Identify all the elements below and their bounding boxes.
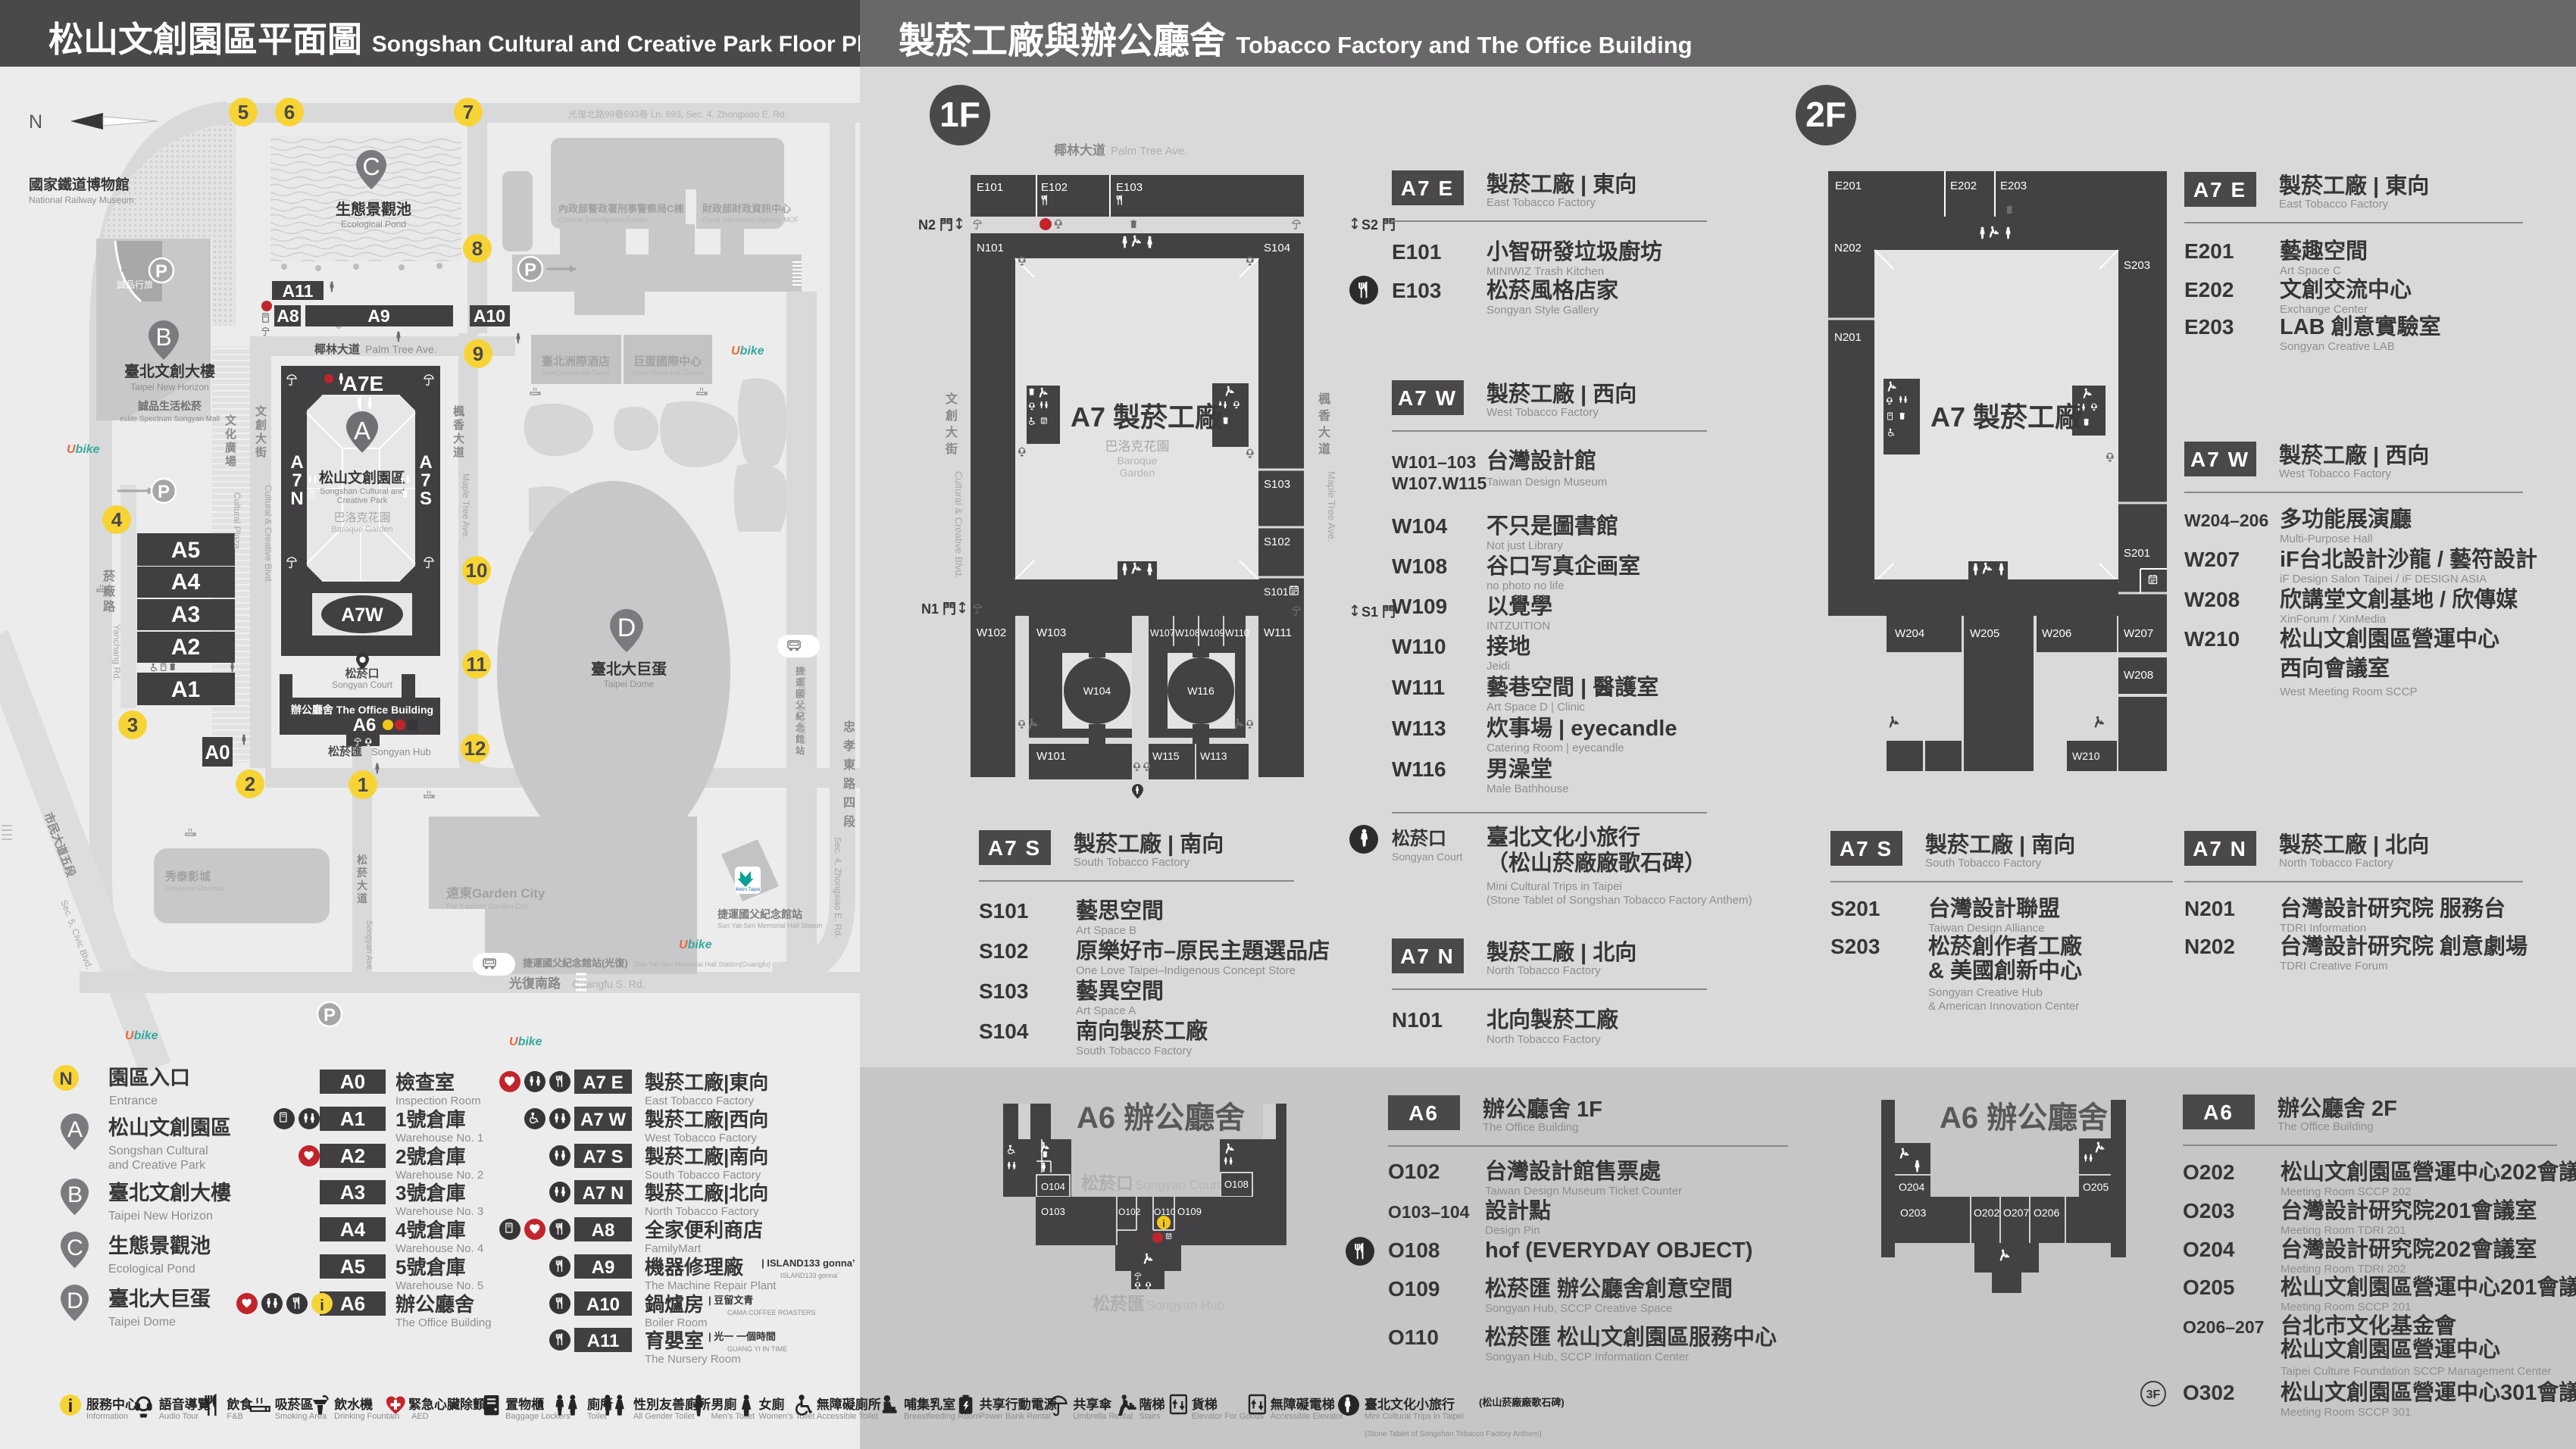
svg-text:Taiwan Design Museum: Taiwan Design Museum xyxy=(1487,476,1607,489)
svg-text:O203: O203 xyxy=(1900,1207,1926,1219)
svg-text:Songyan Hub, SCCP Information: Songyan Hub, SCCP Information Center xyxy=(1485,1351,1689,1363)
svg-text:男澡堂: 男澡堂 xyxy=(1487,757,1552,782)
svg-text:Design Pin: Design Pin xyxy=(1485,1224,1540,1237)
svg-text:W107.W115: W107.W115 xyxy=(1392,473,1487,493)
svg-text:道: 道 xyxy=(453,445,464,459)
svg-text:台灣設計研究院 服務台: 台灣設計研究院 服務台 xyxy=(2280,895,2506,921)
svg-text:辦公廳舍 2F: 辦公廳舍 2F xyxy=(2277,1095,2397,1121)
svg-text:運: 運 xyxy=(798,676,806,686)
svg-text:大: 大 xyxy=(255,432,267,445)
svg-text:West Tobacco Factory: West Tobacco Factory xyxy=(645,1132,757,1145)
svg-text:3: 3 xyxy=(127,714,138,736)
svg-text:Meeting Room SCCP 301: Meeting Room SCCP 301 xyxy=(2281,1406,2411,1419)
svg-text:吸菸區: 吸菸區 xyxy=(275,1397,314,1412)
svg-text:A7 E: A7 E xyxy=(1401,176,1454,200)
svg-text:E203: E203 xyxy=(2000,180,2027,192)
svg-text:2號倉庫: 2號倉庫 xyxy=(395,1145,465,1168)
svg-text:East Tobacco Factory: East Tobacco Factory xyxy=(2279,198,2388,211)
svg-text:South Tobacco Factory: South Tobacco Factory xyxy=(1074,856,1190,869)
svg-text:W204–206: W204–206 xyxy=(2184,511,2268,530)
svg-text:Ubike: Ubike xyxy=(679,938,712,951)
svg-text:| ISLAND133 gonnaʼ: | ISLAND133 gonnaʼ xyxy=(761,1257,855,1269)
svg-text:12: 12 xyxy=(464,737,486,760)
svg-text:Far Eastern Garden City: Far Eastern Garden City xyxy=(446,903,528,911)
svg-text:A6: A6 xyxy=(1408,1101,1439,1125)
svg-text:MINIWIZ Trash Kitchen: MINIWIZ Trash Kitchen xyxy=(1487,265,1604,278)
svg-text:S102: S102 xyxy=(979,939,1028,963)
svg-text:製菸工廠|南向: 製菸工廠|南向 xyxy=(645,1145,768,1168)
svg-text:A1: A1 xyxy=(340,1107,365,1130)
svg-text:The Office Building: The Office Building xyxy=(2277,1120,2373,1133)
svg-text:W210: W210 xyxy=(2072,750,2100,762)
svg-text:InterContinental Taipei: InterContinental Taipei xyxy=(542,369,609,376)
svg-text:臺北文化小旅行: 臺北文化小旅行 xyxy=(1487,824,1640,850)
svg-text:文: 文 xyxy=(255,404,267,418)
svg-text:Information: Information xyxy=(86,1412,128,1421)
svg-text:East Tobacco Factory: East Tobacco Factory xyxy=(645,1095,754,1107)
svg-text:Yanchang Rd.: Yanchang Rd. xyxy=(111,624,122,681)
svg-text:藝趣空間: 藝趣空間 xyxy=(2280,238,2368,264)
svg-text:辦公廳舍: 辦公廳舍 xyxy=(395,1293,474,1316)
svg-text:機器修理廠: 機器修理廠 xyxy=(645,1256,744,1279)
svg-text:W104: W104 xyxy=(1392,514,1448,538)
svg-text:製菸工廠 | 北向: 製菸工廠 | 北向 xyxy=(1487,939,1637,965)
svg-text:W204: W204 xyxy=(1895,627,1924,640)
svg-text:O108: O108 xyxy=(1388,1238,1440,1262)
svg-text:Exchange Center: Exchange Center xyxy=(2280,303,2368,316)
svg-text:父: 父 xyxy=(798,696,806,706)
svg-text:O103–104: O103–104 xyxy=(1388,1202,1470,1222)
svg-text:W206: W206 xyxy=(2042,627,2071,640)
svg-text:Audio Tour: Audio Tour xyxy=(159,1412,199,1421)
svg-text:孝: 孝 xyxy=(843,739,855,753)
svg-text:站: 站 xyxy=(798,735,806,745)
svg-text:紀: 紀 xyxy=(798,706,806,716)
svg-text:S203: S203 xyxy=(1830,935,1880,958)
svg-text:W205: W205 xyxy=(1970,627,1999,640)
svg-text:A6 辦公廳舍: A6 辦公廳舍 xyxy=(1077,1101,1245,1135)
svg-text:The Office Building: The Office Building xyxy=(1483,1121,1578,1134)
svg-text:i: i xyxy=(1162,1218,1165,1229)
svg-text:The Nursery Room: The Nursery Room xyxy=(645,1353,741,1366)
svg-text:E203: E203 xyxy=(2184,315,2234,339)
svg-text:LAB 創意實驗室: LAB 創意實驗室 xyxy=(2280,314,2441,339)
svg-text:Art Space D | Clinic: Art Space D | Clinic xyxy=(1487,701,1585,714)
svg-text:製菸工廠 | 西向: 製菸工廠 | 西向 xyxy=(1487,381,1637,407)
svg-text:台灣設計館售票處: 台灣設計館售票處 xyxy=(1485,1158,1661,1184)
svg-text:A4: A4 xyxy=(340,1218,366,1241)
svg-text:Art Space C: Art Space C xyxy=(2280,264,2341,277)
svg-text:製菸工廠 | 東向: 製菸工廠 | 東向 xyxy=(1487,171,1637,197)
svg-text:臺北洲際酒店: 臺北洲際酒店 xyxy=(542,354,610,368)
svg-text:遠東Garden City: 遠東Garden City xyxy=(446,885,546,901)
svg-text:松菸匯 松山文創園區服務中心: 松菸匯 松山文創園區服務中心 xyxy=(1485,1324,1777,1350)
svg-text:XinForum / XinMedia: XinForum / XinMedia xyxy=(2280,613,2387,626)
svg-text:創: 創 xyxy=(255,418,267,432)
svg-text:Male Bathhouse: Male Bathhouse xyxy=(1487,782,1568,795)
svg-text:A8: A8 xyxy=(592,1220,615,1241)
svg-text:製菸工廠|北向: 製菸工廠|北向 xyxy=(645,1182,768,1204)
svg-text:Ecological Pond: Ecological Pond xyxy=(108,1263,195,1276)
svg-text:台灣設計聯盟: 台灣設計聯盟 xyxy=(1928,895,2060,921)
svg-text:以覺學: 以覺學 xyxy=(1487,594,1552,619)
svg-text:South Tobacco Factory: South Tobacco Factory xyxy=(645,1169,761,1182)
svg-text:6: 6 xyxy=(284,101,295,123)
svg-text:W111: W111 xyxy=(1392,676,1445,699)
svg-text:Showtime Cinemas: Showtime Cinemas xyxy=(165,885,224,892)
svg-text:Songyan Creative Hub: Songyan Creative Hub xyxy=(1928,986,2043,999)
svg-text:5號倉庫: 5號倉庫 xyxy=(395,1256,465,1279)
svg-text:B: B xyxy=(67,1182,83,1207)
svg-text:W109: W109 xyxy=(1392,595,1447,618)
svg-text:5: 5 xyxy=(238,101,249,123)
svg-text:O302: O302 xyxy=(2183,1381,2235,1404)
svg-text:Meeting Room TDRI 202: Meeting Room TDRI 202 xyxy=(2281,1263,2406,1276)
svg-text:A7 N: A7 N xyxy=(1400,945,1455,968)
svg-text:文創交流中心: 文創交流中心 xyxy=(2280,276,2412,302)
svg-text:i: i xyxy=(68,1396,73,1416)
svg-text:One Love Taipei–Indigenous Con: One Love Taipei–Indigenous Concept Store xyxy=(1076,964,1296,977)
svg-text:大: 大 xyxy=(453,432,464,445)
svg-text:不只是圖書館: 不只是圖書館 xyxy=(1487,513,1618,539)
svg-text:Taipei New Horizon: Taipei New Horizon xyxy=(108,1210,213,1223)
svg-text:E101: E101 xyxy=(1392,240,1441,264)
svg-text:A2: A2 xyxy=(340,1145,365,1167)
svg-text:West Tobacco Factory: West Tobacco Factory xyxy=(2279,467,2391,480)
svg-text:A7 N: A7 N xyxy=(2193,837,2247,860)
svg-text:置物櫃: 置物櫃 xyxy=(505,1397,544,1412)
svg-text:N: N xyxy=(59,1069,72,1089)
svg-text:A0: A0 xyxy=(340,1070,365,1093)
svg-text:松山文創園區營運中心301會議室: 松山文創園區營運中心301會議室 xyxy=(2281,1379,2576,1405)
svg-text:松山文創園區: 松山文創園區 xyxy=(108,1116,231,1139)
svg-text:O108: O108 xyxy=(1224,1179,1249,1190)
svg-text:Metro Taipei: Metro Taipei xyxy=(736,888,761,892)
svg-text:Art Space A: Art Space A xyxy=(1076,1004,1136,1017)
svg-text:North Tobacco Factory: North Tobacco Factory xyxy=(1487,964,1601,977)
svg-text:Fiscal Information Agency, MOF: Fiscal Information Agency, MOF xyxy=(702,216,799,223)
svg-text:W116: W116 xyxy=(1392,757,1446,781)
svg-text:West Tobacco Factory: West Tobacco Factory xyxy=(1487,406,1599,419)
svg-text:W108: W108 xyxy=(1392,554,1447,578)
svg-text:國: 國 xyxy=(798,686,806,696)
svg-text:A7 E: A7 E xyxy=(583,1073,623,1093)
svg-text:市民大道五段: 市民大道五段 xyxy=(41,810,78,879)
svg-text:Catering Room | eyecandle: Catering Room | eyecandle xyxy=(1487,742,1624,754)
svg-text:S103: S103 xyxy=(979,979,1028,1003)
svg-text:松山文創園區營運中心: 松山文創園區營運中心 xyxy=(2280,626,2499,651)
svg-text:East Tobacco Factory: East Tobacco Factory xyxy=(1487,196,1596,209)
svg-text:North Tobacco Factory: North Tobacco Factory xyxy=(645,1205,759,1218)
svg-text:3號倉庫: 3號倉庫 xyxy=(395,1182,465,1204)
svg-text:Boiler Room: Boiler Room xyxy=(645,1316,708,1329)
svg-text:臺北文創大樓: 臺北文創大樓 xyxy=(108,1181,231,1204)
svg-text:Meeting Room SCCP 201: Meeting Room SCCP 201 xyxy=(2281,1301,2411,1313)
svg-text:W208: W208 xyxy=(2184,588,2240,611)
svg-text:Taipei Culture Foundation SCCP: Taipei Culture Foundation SCCP Managemen… xyxy=(2281,1365,2551,1378)
svg-text:育嬰室: 育嬰室 xyxy=(645,1329,704,1352)
svg-text:Warehouse No. 3: Warehouse No. 3 xyxy=(395,1205,483,1218)
svg-text:W207: W207 xyxy=(2124,627,2153,640)
svg-text:O207: O207 xyxy=(2003,1207,2029,1219)
svg-text:8: 8 xyxy=(472,237,483,260)
svg-text:台灣設計研究院201會議室: 台灣設計研究院201會議室 xyxy=(2281,1198,2537,1223)
svg-text:捷: 捷 xyxy=(798,666,806,676)
svg-text:O206–207: O206–207 xyxy=(2183,1317,2264,1337)
svg-text:O205: O205 xyxy=(2183,1276,2235,1299)
svg-text:檢查室: 檢查室 xyxy=(395,1071,455,1094)
svg-text:女廁: 女廁 xyxy=(759,1397,785,1412)
svg-text:藝思空間: 藝思空間 xyxy=(1076,898,1164,923)
svg-text:E201: E201 xyxy=(2184,239,2234,263)
svg-text:製菸工廠|西向: 製菸工廠|西向 xyxy=(645,1108,768,1131)
svg-text:Meeting Room TDRI 201: Meeting Room TDRI 201 xyxy=(2281,1224,2406,1237)
svg-text:飲食: 飲食 xyxy=(226,1397,253,1412)
svg-text:Ubike: Ubike xyxy=(509,1035,542,1048)
svg-text:辦公廳舍 1F: 辦公廳舍 1F xyxy=(1483,1096,1602,1122)
svg-text:S101: S101 xyxy=(979,899,1028,923)
svg-text:A7 S: A7 S xyxy=(988,836,1041,860)
svg-text:iF台北設計沙龍 / 藝符設計: iF台北設計沙龍 / 藝符設計 xyxy=(2280,546,2537,572)
svg-text:(Stone Tablet of Songshan Toba: (Stone Tablet of Songshan Tobacco Factor… xyxy=(1487,894,1752,907)
svg-text:製菸工廠 | 東向: 製菸工廠 | 東向 xyxy=(2279,173,2429,198)
svg-text:i: i xyxy=(320,1298,324,1314)
svg-text:製菸工廠 | 南向: 製菸工廠 | 南向 xyxy=(1925,832,2075,857)
svg-text:INTZUITION: INTZUITION xyxy=(1487,620,1550,632)
svg-text:藝巷空間 | 醫護室: 藝巷空間 | 醫護室 xyxy=(1487,674,1658,700)
svg-text:Warehouse No. 4: Warehouse No. 4 xyxy=(395,1242,483,1255)
svg-text:O203: O203 xyxy=(2183,1199,2235,1223)
svg-text:Toilet: Toilet xyxy=(587,1412,607,1421)
svg-text:S104: S104 xyxy=(979,1020,1029,1043)
svg-text:Ubike: Ubike xyxy=(67,443,100,456)
svg-text:O204: O204 xyxy=(1899,1181,1924,1193)
svg-text:小智研發垃圾廚坊: 小智研發垃圾廚坊 xyxy=(1487,239,1662,264)
svg-text:Songyan Style Gallery: Songyan Style Gallery xyxy=(1487,304,1599,317)
svg-text:and Creative Park: and Creative Park xyxy=(108,1159,206,1172)
svg-text:O103: O103 xyxy=(1041,1206,1065,1217)
svg-text:Songyan Hub: Songyan Hub xyxy=(1146,1298,1224,1313)
svg-text:鍋爐房: 鍋爐房 xyxy=(645,1293,704,1316)
svg-text:C: C xyxy=(67,1235,83,1260)
svg-text:接地: 接地 xyxy=(1487,634,1530,659)
svg-text:A9: A9 xyxy=(592,1257,615,1278)
svg-text:谷口写真企画室: 谷口写真企画室 xyxy=(1487,553,1640,579)
svg-text:N201: N201 xyxy=(2184,897,2235,920)
svg-text:S201: S201 xyxy=(2124,547,2150,560)
svg-text:no photo no life: no photo no life xyxy=(1487,579,1565,592)
svg-text:7: 7 xyxy=(463,101,474,123)
svg-text:O102: O102 xyxy=(1118,1207,1141,1217)
svg-text:西向會議室: 西向會議室 xyxy=(2280,655,2390,681)
svg-text:Warehouse No. 1: Warehouse No. 1 xyxy=(395,1132,483,1145)
svg-text:W208: W208 xyxy=(2124,669,2153,682)
svg-text:| 豆留文青: | 豆留文青 xyxy=(708,1294,753,1306)
svg-text:菸: 菸 xyxy=(103,569,116,583)
svg-text:松山文創園區營運中心202會議室: 松山文創園區營運中心202會議室 xyxy=(2281,1159,2576,1185)
svg-text:段: 段 xyxy=(843,814,856,829)
svg-text:松: 松 xyxy=(357,854,367,866)
svg-text:松菸匯 辦公廳舍創意空間: 松菸匯 辦公廳舍創意空間 xyxy=(1485,1276,1733,1301)
svg-text:Multi-Purpose Hall: Multi-Purpose Hall xyxy=(2280,532,2373,545)
svg-text:Songyan Ave.: Songyan Ave. xyxy=(364,920,374,972)
svg-text:道: 道 xyxy=(357,892,367,904)
svg-text:iF Design Salon Taipei / iF DE: iF Design Salon Taipei / iF DESIGN ASIA xyxy=(2280,573,2487,586)
svg-text:財政部財政資訊中心: 財政部財政資訊中心 xyxy=(702,203,791,214)
svg-text:（松山菸廠廠歌石碑）: （松山菸廠廠歌石碑） xyxy=(1487,850,1706,876)
svg-text:AED: AED xyxy=(411,1412,429,1421)
svg-text:1號倉庫: 1號倉庫 xyxy=(395,1108,465,1131)
svg-text:A7 W: A7 W xyxy=(580,1110,626,1130)
svg-text:N202: N202 xyxy=(1834,242,1862,255)
svg-text:Taiwan Design Alliance: Taiwan Design Alliance xyxy=(1928,922,2044,935)
svg-text:光復北路99巷693巷 Ln. 693, Sec. 4,: 光復北路99巷693巷 Ln. 693, Sec. 4, Zhongxiao E… xyxy=(568,108,787,120)
svg-text:Entrance: Entrance xyxy=(109,1095,158,1107)
svg-text:化: 化 xyxy=(225,427,236,441)
svg-text:松菸口: 松菸口 xyxy=(1081,1173,1133,1193)
svg-text:hof (EVERYDAY OBJECT): hof (EVERYDAY OBJECT) xyxy=(1485,1238,1752,1263)
svg-text:E202: E202 xyxy=(2184,278,2234,301)
svg-text:文: 文 xyxy=(225,414,237,427)
svg-text:原樂好市–原民主題選品店: 原樂好市–原民主題選品店 xyxy=(1076,938,1330,963)
svg-text:S201: S201 xyxy=(1830,897,1880,920)
svg-text:Maple Tree Ave.: Maple Tree Ave. xyxy=(461,473,471,539)
svg-text:10: 10 xyxy=(466,559,488,582)
svg-text:台灣設計館: 台灣設計館 xyxy=(1487,448,1596,473)
svg-text:South Tobacco Factory: South Tobacco Factory xyxy=(1076,1045,1193,1057)
svg-text:4號倉庫: 4號倉庫 xyxy=(395,1219,465,1241)
svg-text:Taipei Dome Intl. Center: Taipei Dome Intl. Center xyxy=(631,369,705,376)
svg-text:Songshan Cultural: Songshan Cultural xyxy=(108,1145,208,1157)
svg-text:台灣設計研究院202會議室: 台灣設計研究院202會議室 xyxy=(2281,1236,2537,1262)
svg-text:製菸工廠|東向: 製菸工廠|東向 xyxy=(645,1071,768,1094)
svg-text:W207: W207 xyxy=(2184,548,2240,571)
svg-text:捷運國父紀念館站: 捷運國父紀念館站 xyxy=(717,908,802,920)
svg-text:All Gender Toilet: All Gender Toilet xyxy=(633,1412,695,1421)
svg-text:A5: A5 xyxy=(340,1255,365,1278)
svg-text:A7 W: A7 W xyxy=(1398,386,1457,410)
svg-text:站: 站 xyxy=(796,745,805,756)
svg-text:捷運國父紀念館站(光復): 捷運國父紀念館站(光復) xyxy=(523,957,628,969)
svg-text:製菸工廠 | 南向: 製菸工廠 | 南向 xyxy=(1074,831,1224,857)
svg-text:A10: A10 xyxy=(586,1294,620,1315)
svg-text:Drinking Fountain: Drinking Fountain xyxy=(334,1412,399,1421)
svg-text:大: 大 xyxy=(357,879,367,892)
svg-text:松菸口: 松菸口 xyxy=(1392,829,1446,849)
svg-text:FamilyMart: FamilyMart xyxy=(645,1242,702,1255)
svg-text:CAMA COFFEE ROASTERS: CAMA COFFEE ROASTERS xyxy=(727,1309,816,1316)
svg-text:Taiwan Design Museum Ticket Co: Taiwan Design Museum Ticket Counter xyxy=(1485,1185,1682,1198)
svg-text:內政部警政署刑事警察局C棟: 內政部警政署刑事警察局C棟 xyxy=(558,203,684,214)
svg-text:West Meeting Room SCCP: West Meeting Room SCCP xyxy=(2280,685,2417,698)
svg-text:Songyan Hub, SCCP Creative Spa: Songyan Hub, SCCP Creative Space xyxy=(1485,1302,1672,1315)
svg-text:A7 E: A7 E xyxy=(2193,178,2246,201)
svg-text:A7 W: A7 W xyxy=(2190,448,2249,471)
svg-text:A7 S: A7 S xyxy=(583,1147,623,1167)
svg-text:製菸工廠 | 北向: 製菸工廠 | 北向 xyxy=(2279,832,2429,857)
svg-text:巨蛋國際中心: 巨蛋國際中心 xyxy=(633,354,702,368)
svg-text:園區入口: 園區入口 xyxy=(108,1066,190,1089)
svg-text:場: 場 xyxy=(225,455,236,468)
svg-text:W101–103: W101–103 xyxy=(1392,452,1476,472)
svg-text:N202: N202 xyxy=(2184,935,2235,958)
svg-text:W110: W110 xyxy=(1392,635,1446,658)
svg-text:E103: E103 xyxy=(1392,279,1441,302)
svg-text:North Tobacco Factory: North Tobacco Factory xyxy=(1487,1033,1601,1046)
svg-text:松菸創作者工廠: 松菸創作者工廠 xyxy=(1928,933,2082,959)
svg-text:Songyan Court: Songyan Court xyxy=(1135,1178,1221,1192)
svg-text:O204: O204 xyxy=(2183,1238,2235,1261)
svg-text:A: A xyxy=(67,1117,83,1142)
svg-text:飲水機: 飲水機 xyxy=(333,1397,373,1412)
svg-text:Ubike: Ubike xyxy=(731,345,764,358)
svg-text:W210: W210 xyxy=(2184,627,2240,651)
svg-text:Ubike: Ubike xyxy=(125,1029,158,1042)
svg-text:街: 街 xyxy=(255,445,267,459)
svg-text:南向製菸工廠: 南向製菸工廠 xyxy=(1076,1018,1208,1044)
svg-text:館: 館 xyxy=(798,725,806,735)
svg-text:Jeidi: Jeidi xyxy=(1487,660,1510,673)
svg-text:4: 4 xyxy=(111,508,123,531)
svg-text:9: 9 xyxy=(473,342,483,365)
svg-text:O109: O109 xyxy=(1388,1277,1440,1301)
svg-text:松山文創園區營運中心: 松山文創園區營運中心 xyxy=(2281,1336,2500,1362)
svg-text:北向製菸工廠: 北向製菸工廠 xyxy=(1487,1007,1618,1032)
svg-text:Songyan Court: Songyan Court xyxy=(1392,851,1463,863)
svg-text:A11: A11 xyxy=(587,1331,620,1351)
svg-text:South Tobacco Factory: South Tobacco Factory xyxy=(1925,857,2042,870)
svg-text:11: 11 xyxy=(466,653,487,676)
svg-text:2: 2 xyxy=(245,773,255,795)
svg-text:The Machine Repair Plant: The Machine Repair Plant xyxy=(645,1279,777,1292)
svg-text:& 美國創新中心: & 美國創新中心 xyxy=(1928,958,2082,983)
svg-text:A6: A6 xyxy=(340,1292,365,1315)
svg-text:楓: 楓 xyxy=(453,404,465,418)
svg-text:路: 路 xyxy=(103,599,116,614)
svg-text:台灣設計研究院 創意劇場: 台灣設計研究院 創意劇場 xyxy=(2280,933,2528,959)
svg-text:E201: E201 xyxy=(1835,180,1862,192)
svg-text:GUANG YI IN TIME: GUANG YI IN TIME xyxy=(727,1345,787,1353)
svg-text:O102: O102 xyxy=(1388,1160,1440,1183)
svg-text:A6 辦公廳舍: A6 辦公廳舍 xyxy=(1940,1101,2108,1135)
svg-text:服務中心: 服務中心 xyxy=(86,1397,138,1412)
svg-text:North Tobacco Factory: North Tobacco Factory xyxy=(2279,857,2393,870)
svg-text:O109: O109 xyxy=(1177,1206,1202,1217)
svg-text:S203: S203 xyxy=(2124,259,2150,272)
svg-text:& American Innovation Center: & American Innovation Center xyxy=(1928,1000,2079,1013)
svg-text:松山文創園區營運中心201會議室: 松山文創園區營運中心201會議室 xyxy=(2281,1274,2576,1300)
svg-text:四: 四 xyxy=(843,797,855,810)
svg-text:欣講堂文創基地 / 欣傳媒: 欣講堂文創基地 / 欣傳媒 xyxy=(2280,586,2518,612)
svg-text:男廁: 男廁 xyxy=(711,1397,737,1412)
svg-text:3F: 3F xyxy=(2146,1388,2161,1401)
svg-text:D: D xyxy=(67,1288,83,1313)
svg-text:A7 製菸工廠: A7 製菸工廠 xyxy=(1930,401,2082,433)
svg-text:語音導覽: 語音導覽 xyxy=(159,1397,211,1412)
svg-text:松菸匯: 松菸匯 xyxy=(1093,1294,1145,1313)
svg-text:全家便利商店: 全家便利商店 xyxy=(644,1219,763,1241)
svg-text:香: 香 xyxy=(453,418,464,432)
svg-text:O110: O110 xyxy=(1154,1207,1176,1217)
svg-text:Sun Yat-Sen Memorial Hall Stat: Sun Yat-Sen Memorial Hall Station xyxy=(717,922,822,929)
svg-text:Inspection Room: Inspection Room xyxy=(395,1095,481,1107)
svg-text:炊事場 | eyecandle: 炊事場 | eyecandle xyxy=(1487,716,1677,741)
svg-text:Art Space B: Art Space B xyxy=(1076,924,1136,937)
svg-text:A6: A6 xyxy=(2203,1101,2234,1124)
svg-text:廣: 廣 xyxy=(225,441,236,454)
svg-text:忠: 忠 xyxy=(843,720,855,734)
svg-text:O202: O202 xyxy=(1974,1207,1999,1219)
